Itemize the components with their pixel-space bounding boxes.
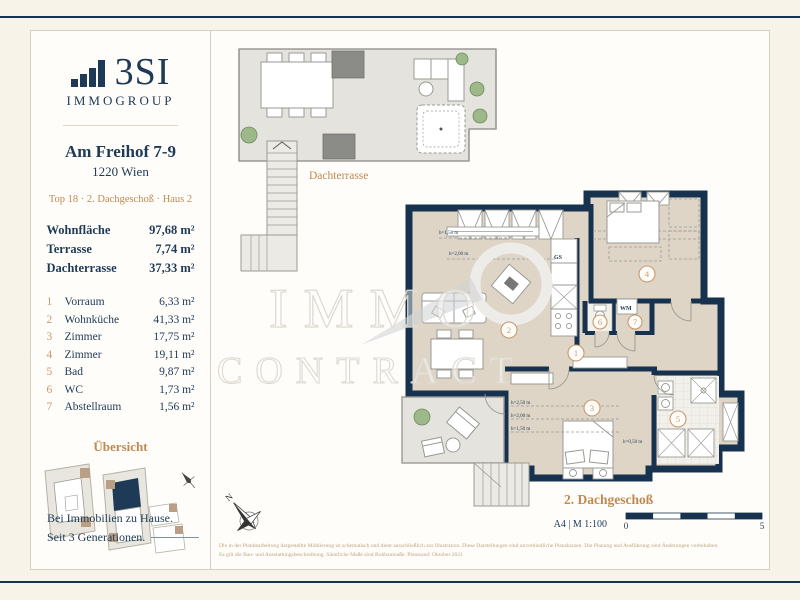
room-row: 3Zimmer17,75 m² (47, 329, 195, 347)
floorplan-svg: Dachterrasse (211, 31, 769, 569)
room-area: 1,56 m² (159, 399, 194, 417)
disclaimer: Die in der Planbearbeitung dargestellte … (219, 542, 719, 558)
tagline-line1: Bei Immobilien zu Hause. (47, 509, 199, 528)
room-number: 2 (47, 312, 65, 330)
sidebar: 3SI IMMOGROUP Am Freihof 7-9 1220 Wien T… (31, 31, 211, 569)
tagline-rule (151, 537, 199, 538)
dishwasher-label: GS (554, 255, 563, 261)
listing-unit: Top 18 · 2. Dachgeschoß · Haus 2 (49, 194, 192, 205)
terrace-jacuzzi (417, 105, 465, 153)
sideboard (447, 227, 539, 236)
terrace-skylight (332, 51, 364, 78)
disclaimer-line1: Die in der Planbearbeitung dargestellte … (219, 542, 719, 549)
page-card: 3SI IMMOGROUP Am Freihof 7-9 1220 Wien T… (30, 30, 770, 570)
terrace-dining-set (261, 53, 333, 117)
watermark-line1: IMMO (269, 278, 492, 340)
format-scale-label: A4 | M 1:100 (554, 519, 607, 530)
kitchen-unit (551, 239, 577, 336)
north-compass-icon: N (214, 484, 267, 539)
room-row: 7Abstellraum1,56 m² (47, 399, 195, 417)
summary-row: Dachterrasse 37,33 m² (47, 259, 195, 278)
height-label: h=2,00 m (511, 414, 530, 419)
logo-bars-icon (71, 57, 111, 87)
room-number: 4 (47, 347, 65, 365)
room-name: Zimmer (65, 329, 154, 347)
room-marker-3: 3 (590, 403, 594, 413)
summary-label: Dachterrasse (47, 259, 117, 278)
room-row: 4Zimmer19,11 m² (47, 347, 195, 365)
bathroom (657, 376, 719, 464)
storage-room: WM (617, 299, 637, 314)
room-number: 6 (47, 382, 65, 400)
room-number: 3 (47, 329, 65, 347)
room-name: Abstellraum (65, 399, 160, 417)
room-name: Vorraum (65, 294, 160, 312)
room-name: WC (65, 382, 160, 400)
terrace-skylight (323, 134, 355, 159)
bottom-staircase (474, 463, 529, 506)
brand-name: 3SI (115, 57, 171, 87)
site-marker (106, 480, 115, 489)
summary-label: Wohnfläche (47, 221, 111, 240)
room-name: Zimmer (65, 347, 154, 365)
watermark-line2: CONTRACT (217, 350, 526, 392)
room-number: 5 (47, 364, 65, 382)
room-marker-2: 2 (507, 325, 511, 335)
room-marker-7: 7 (633, 317, 637, 327)
watermark: IMMO CONTRACT (217, 278, 526, 392)
washing-machine-label: WM (620, 306, 632, 312)
room-marker-5: 5 (676, 414, 680, 424)
lower-terrace (402, 397, 504, 463)
room-list: 1Vorraum6,33 m² 2Wohnküche41,33 m² 3Zimm… (47, 294, 195, 417)
room-row: 5Bad9,87 m² (47, 364, 195, 382)
room-name: Wohnküche (65, 312, 154, 330)
scale-bar: 0 5 (624, 513, 765, 531)
brand-logo: 3SI (71, 57, 171, 87)
room-row: 1Vorraum6,33 m² (47, 294, 195, 312)
room-row: 2Wohnküche41,33 m² (47, 312, 195, 330)
summary-value: 7,74 m² (155, 240, 194, 259)
scale-end: 5 (760, 521, 765, 531)
north-label: N (223, 491, 235, 503)
room-area: 17,75 m² (153, 329, 194, 347)
bottom-rule (0, 581, 800, 583)
site-highlight-unit (112, 478, 141, 511)
brand-subtitle: IMMOGROUP (67, 93, 175, 109)
room-number: 7 (47, 399, 65, 417)
roof-terrace-label: Dachterrasse (309, 170, 368, 182)
sidebar-divider (63, 125, 178, 126)
room-area: 19,11 m² (154, 347, 195, 365)
door-gap (671, 297, 691, 305)
summary-row: Terrasse 7,74 m² (47, 240, 195, 259)
height-label: h=0,50 m (623, 440, 642, 445)
height-label: h=1,50 m (511, 427, 530, 432)
room-area: 9,87 m² (159, 364, 194, 382)
listing-street: Am Freihof 7-9 (65, 142, 176, 162)
height-label: h=2,50 m (511, 401, 530, 406)
brand-tagline: Bei Immobilien zu Hause. Seit 3 Generati… (47, 509, 199, 547)
bedroom4-bed (607, 201, 659, 243)
overview-title: Übersicht (93, 439, 147, 455)
room-row: 6WC1,73 m² (47, 382, 195, 400)
area-summary: Wohnfläche 97,68 m² Terrasse 7,74 m² Dac… (47, 221, 195, 278)
summary-value: 37,33 m² (149, 259, 194, 278)
summary-value: 97,68 m² (149, 221, 194, 240)
room-number: 1 (47, 294, 65, 312)
room-area: 1,73 m² (159, 382, 194, 400)
tagline-line2: Seit 3 Generationen. (47, 528, 145, 547)
room-marker-6: 6 (598, 317, 602, 327)
apartment-plan: GS h=1,50 m h=2,00 m (361, 192, 741, 506)
terrace-plant-icon (414, 409, 430, 425)
height-label: h=1,50 m (439, 231, 458, 236)
site-marker (80, 468, 90, 478)
site-compass-icon (176, 468, 200, 492)
disclaimer-line2: Es gilt die Bau- und Ausstattungsbeschre… (219, 551, 463, 558)
room-area: 6,33 m² (159, 294, 194, 312)
room-area: 41,33 m² (153, 312, 194, 330)
height-label: h=2,00 m (449, 252, 468, 257)
floor-label: 2. Dachgeschoß (564, 492, 654, 507)
top-rule (0, 16, 800, 18)
room-name: Bad (65, 364, 160, 382)
summary-row: Wohnfläche 97,68 m² (47, 221, 195, 240)
listing-city: 1220 Wien (92, 164, 149, 180)
bath-niche-window (723, 403, 738, 441)
summary-label: Terrasse (47, 240, 92, 259)
scale-start: 0 (624, 521, 629, 531)
floorplan-panel: Dachterrasse (211, 31, 769, 569)
room-marker-1: 1 (574, 348, 578, 358)
